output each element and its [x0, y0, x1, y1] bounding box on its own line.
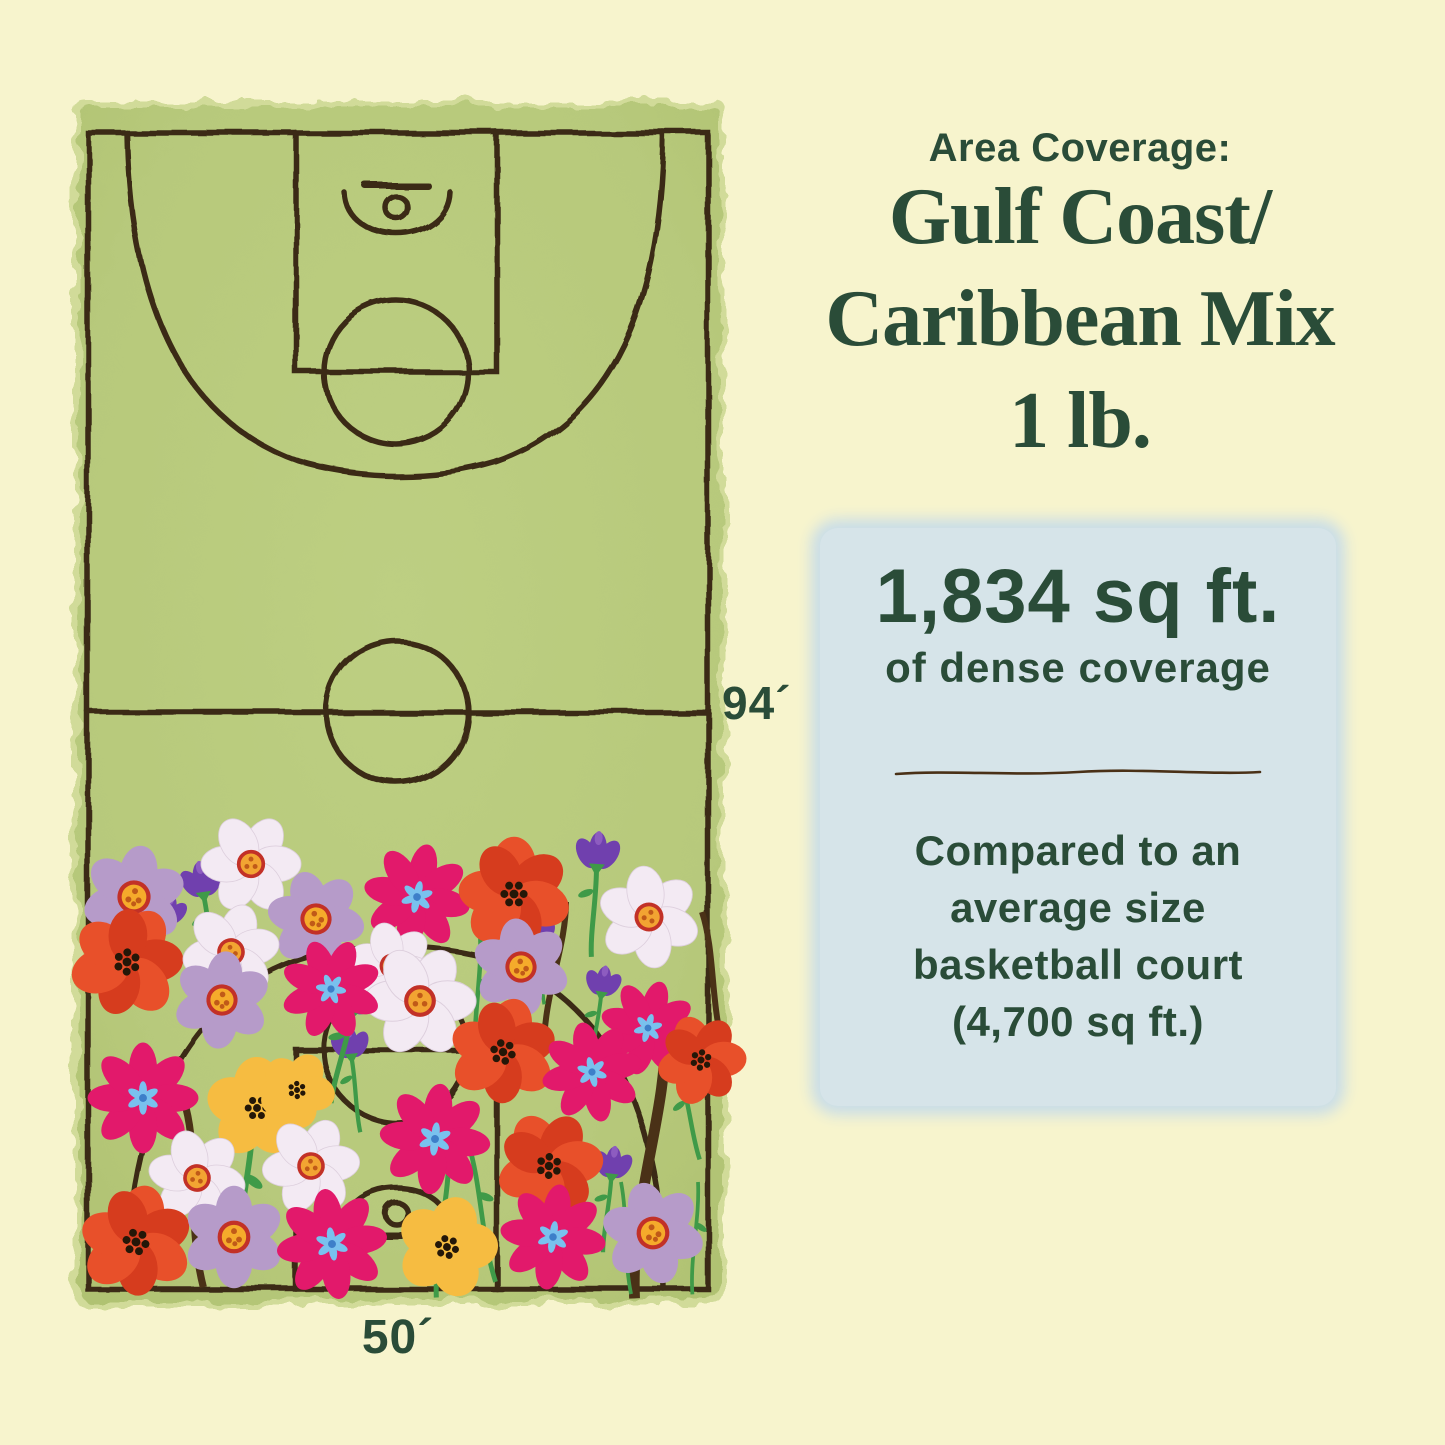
title-line-3: 1 lb.: [1009, 377, 1151, 465]
coverage-stat-caption: of dense coverage: [820, 646, 1336, 690]
comparison-line-1: Compared to an: [820, 822, 1336, 879]
court-width-label: 50´: [338, 1310, 458, 1365]
court-length-label: 94´: [722, 676, 791, 730]
comparison-text: Compared to an average size basketball c…: [820, 822, 1336, 1050]
comparison-line-3: basketball court: [820, 936, 1336, 993]
title-line-2: Caribbean Mix: [825, 275, 1334, 363]
coverage-stat-value: 1,834 sq ft.: [820, 559, 1336, 635]
comparison-line-4: (4,700 sq ft.): [820, 993, 1336, 1050]
comparison-line-2: average size: [820, 879, 1336, 936]
title-line-1: Gulf Coast/: [889, 173, 1271, 261]
area-coverage-kicker: Area Coverage:: [790, 126, 1370, 171]
infographic-canvas: 94´ 50´ Area Coverage: Gulf Coast/ Carib…: [0, 0, 1445, 1445]
coverage-info-box: 1,834 sq ft. of dense coverage Compared …: [820, 528, 1336, 1106]
product-title: Gulf Coast/ Caribbean Mix 1 lb.: [790, 166, 1370, 472]
divider-line: [890, 766, 1266, 780]
